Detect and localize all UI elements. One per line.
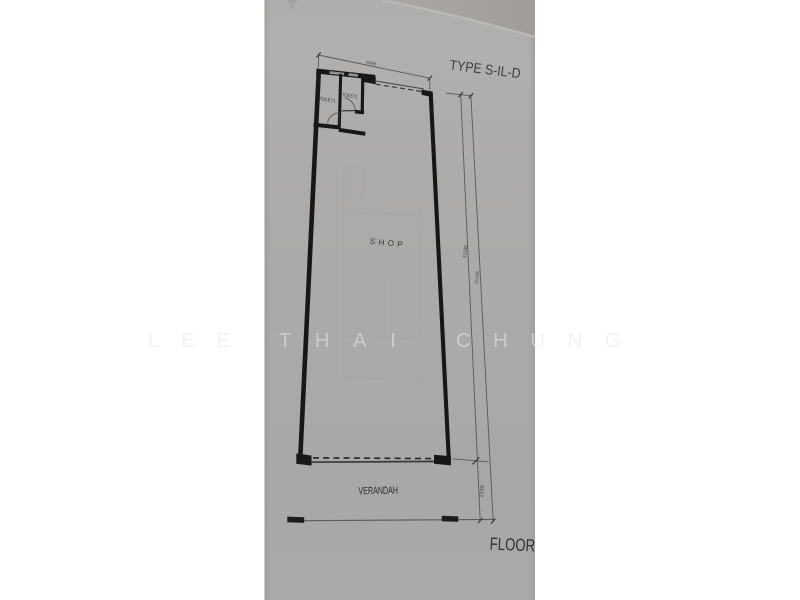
svg-text:2150: 2150	[479, 485, 486, 497]
svg-text:VERANDAH: VERANDAH	[358, 486, 398, 498]
svg-text:FLOOR: FLOOR	[489, 534, 535, 556]
